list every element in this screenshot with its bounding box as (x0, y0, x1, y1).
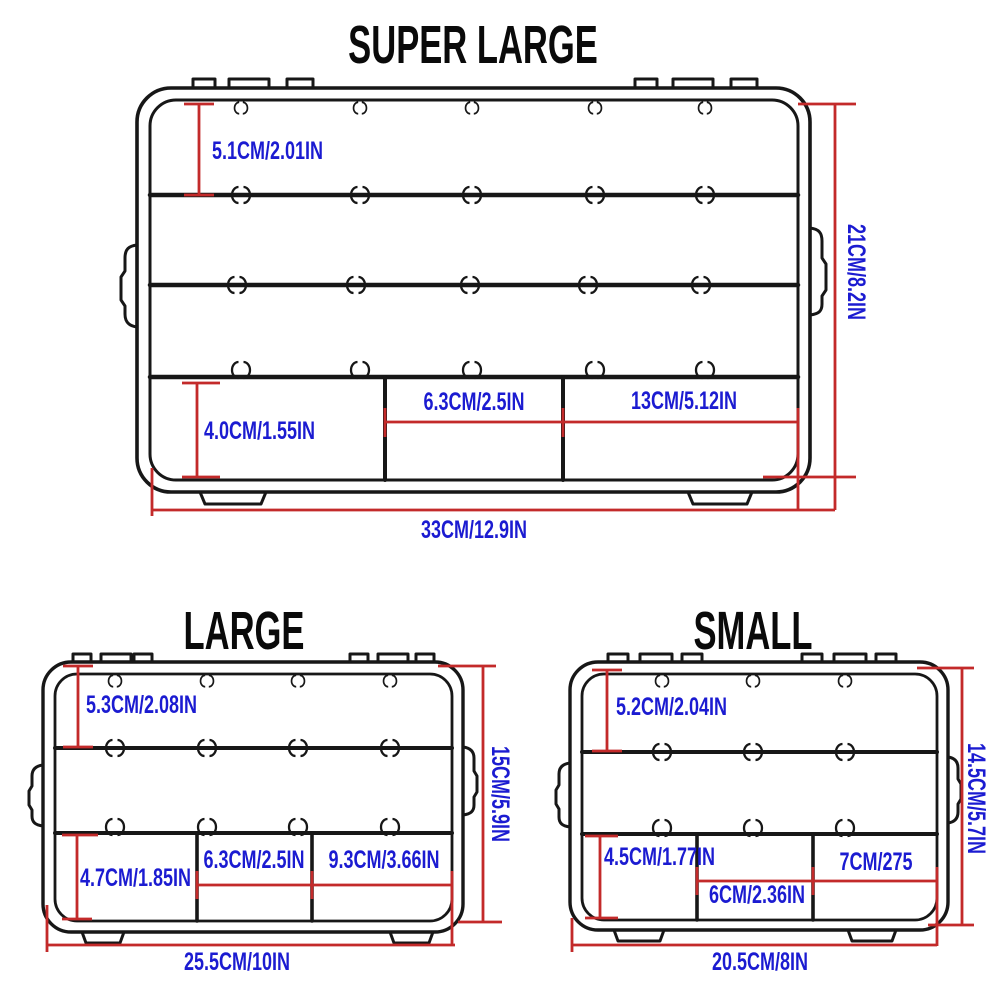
superlarge-bottom-right-width-label: 13CM/5.12IN (631, 389, 737, 414)
clip-icon (384, 675, 397, 687)
side-latch (463, 747, 477, 815)
small-total-height-label: 14.5CM/5.7IN (963, 743, 988, 854)
side-latch (810, 228, 826, 315)
large-bottom-mid-width-label: 6.3CM/2.5IN (203, 848, 304, 873)
clip-icon (656, 675, 669, 687)
superlarge-bottom-mid-width-label: 6.3CM/2.5IN (423, 390, 524, 415)
dimension-line (184, 104, 214, 195)
large-bottom-row-height-label: 4.7CM/1.85IN (80, 866, 191, 891)
large-top-row-height-label: 5.3CM/2.08IN (86, 693, 197, 718)
small-top-row-height-label: 5.2CM/2.04IN (616, 695, 727, 720)
super-large-title: SUPER LARGE (348, 18, 598, 72)
clip-icon (292, 675, 305, 687)
small-bottom-mid-width-label: 6CM/2.36IN (709, 883, 805, 908)
dimension-line (197, 871, 452, 946)
large-bottom-right-width-label: 9.3CM/3.66IN (328, 848, 439, 873)
clip-icon (589, 102, 602, 114)
divider-lines (55, 748, 452, 921)
dimension-line (572, 918, 937, 952)
clip-icon (466, 102, 479, 114)
side-latch (948, 757, 961, 823)
clip-icon (699, 102, 712, 114)
small-title: SMALL (693, 604, 812, 658)
side-latch (29, 765, 43, 826)
small-total-width-label: 20.5CM/8IN (712, 950, 808, 975)
side-latch (556, 763, 570, 827)
small-bottom-row-height-label: 4.5CM/1.77IN (604, 845, 715, 870)
clip-icon (354, 102, 367, 114)
side-latch (121, 245, 137, 327)
dimension-line (47, 905, 455, 952)
side-latches (556, 757, 961, 827)
large-total-height-label: 15CM/5.9IN (487, 746, 512, 842)
large-total-width-label: 25.5CM/10IN (184, 950, 290, 975)
superlarge-total-height-label: 21CM/8.2IN (843, 224, 868, 320)
side-latches (29, 747, 477, 826)
clip-icon (201, 675, 214, 687)
superlarge-total-width-label: 33CM/12.9IN (421, 518, 527, 543)
clip-icon (235, 102, 248, 114)
dimension-line (385, 408, 798, 510)
clip-icon (839, 675, 852, 687)
superlarge-bottom-row-height-label: 4.0CM/1.55IN (204, 419, 315, 444)
clip-icon (109, 675, 122, 687)
dimension-lines (152, 104, 856, 516)
large-title: LARGE (184, 604, 305, 658)
clip-icon (747, 675, 760, 687)
superlarge-top-row-height-label: 5.1CM/2.01IN (212, 139, 323, 164)
tackle-box-dimensions-diagram: SUPER LARGE LARGE SMALL 5.1CM/2.01IN 4.0… (0, 0, 1000, 1000)
small-bottom-right-width-label: 7CM/275 (839, 850, 912, 875)
